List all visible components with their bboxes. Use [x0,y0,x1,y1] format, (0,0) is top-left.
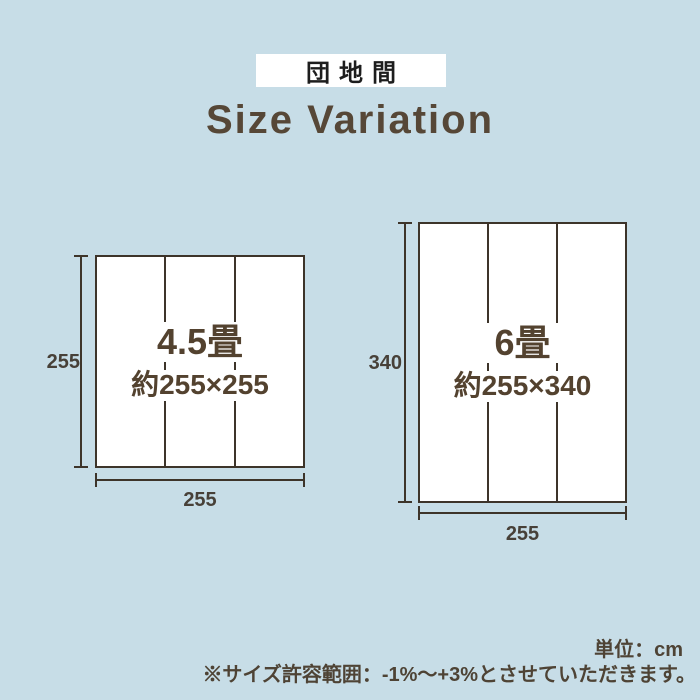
mat-label-4-5jo: 4.5畳 約255×255 [95,255,305,468]
mat-size-label: 約255×340 [448,371,598,402]
dimension-line [418,512,627,514]
mat-name-label: 6畳 [486,323,558,363]
width-dimension-line [418,506,627,520]
mat-name-label: 4.5畳 [149,322,251,362]
dimension-cap [398,501,412,503]
height-dimension-value: 255 [38,352,80,372]
dimension-line [404,222,406,503]
width-dimension-line [95,473,305,487]
tatami-type-badge-label: 団地間 [297,53,405,88]
dimension-cap [625,506,627,520]
mat-size-label: 約255×255 [125,370,275,401]
tatami-type-badge: 団地間 [256,54,446,87]
tolerance-note: ※サイズ許容範囲：-1%〜+3%とさせていただきます。 [202,658,696,687]
height-dimension-value: 340 [360,353,402,373]
dimension-line [95,479,305,481]
page-title: Size Variation [0,98,700,143]
dimension-cap [303,473,305,487]
dimension-cap [74,466,88,468]
mat-label-6jo: 6畳 約255×340 [418,222,627,503]
size-variation-figure: 団地間 Size Variation 4.5畳 約255×255 255 255 [0,0,700,700]
dimension-line [80,255,82,468]
width-dimension-value: 255 [418,524,627,544]
width-dimension-value: 255 [95,490,305,510]
